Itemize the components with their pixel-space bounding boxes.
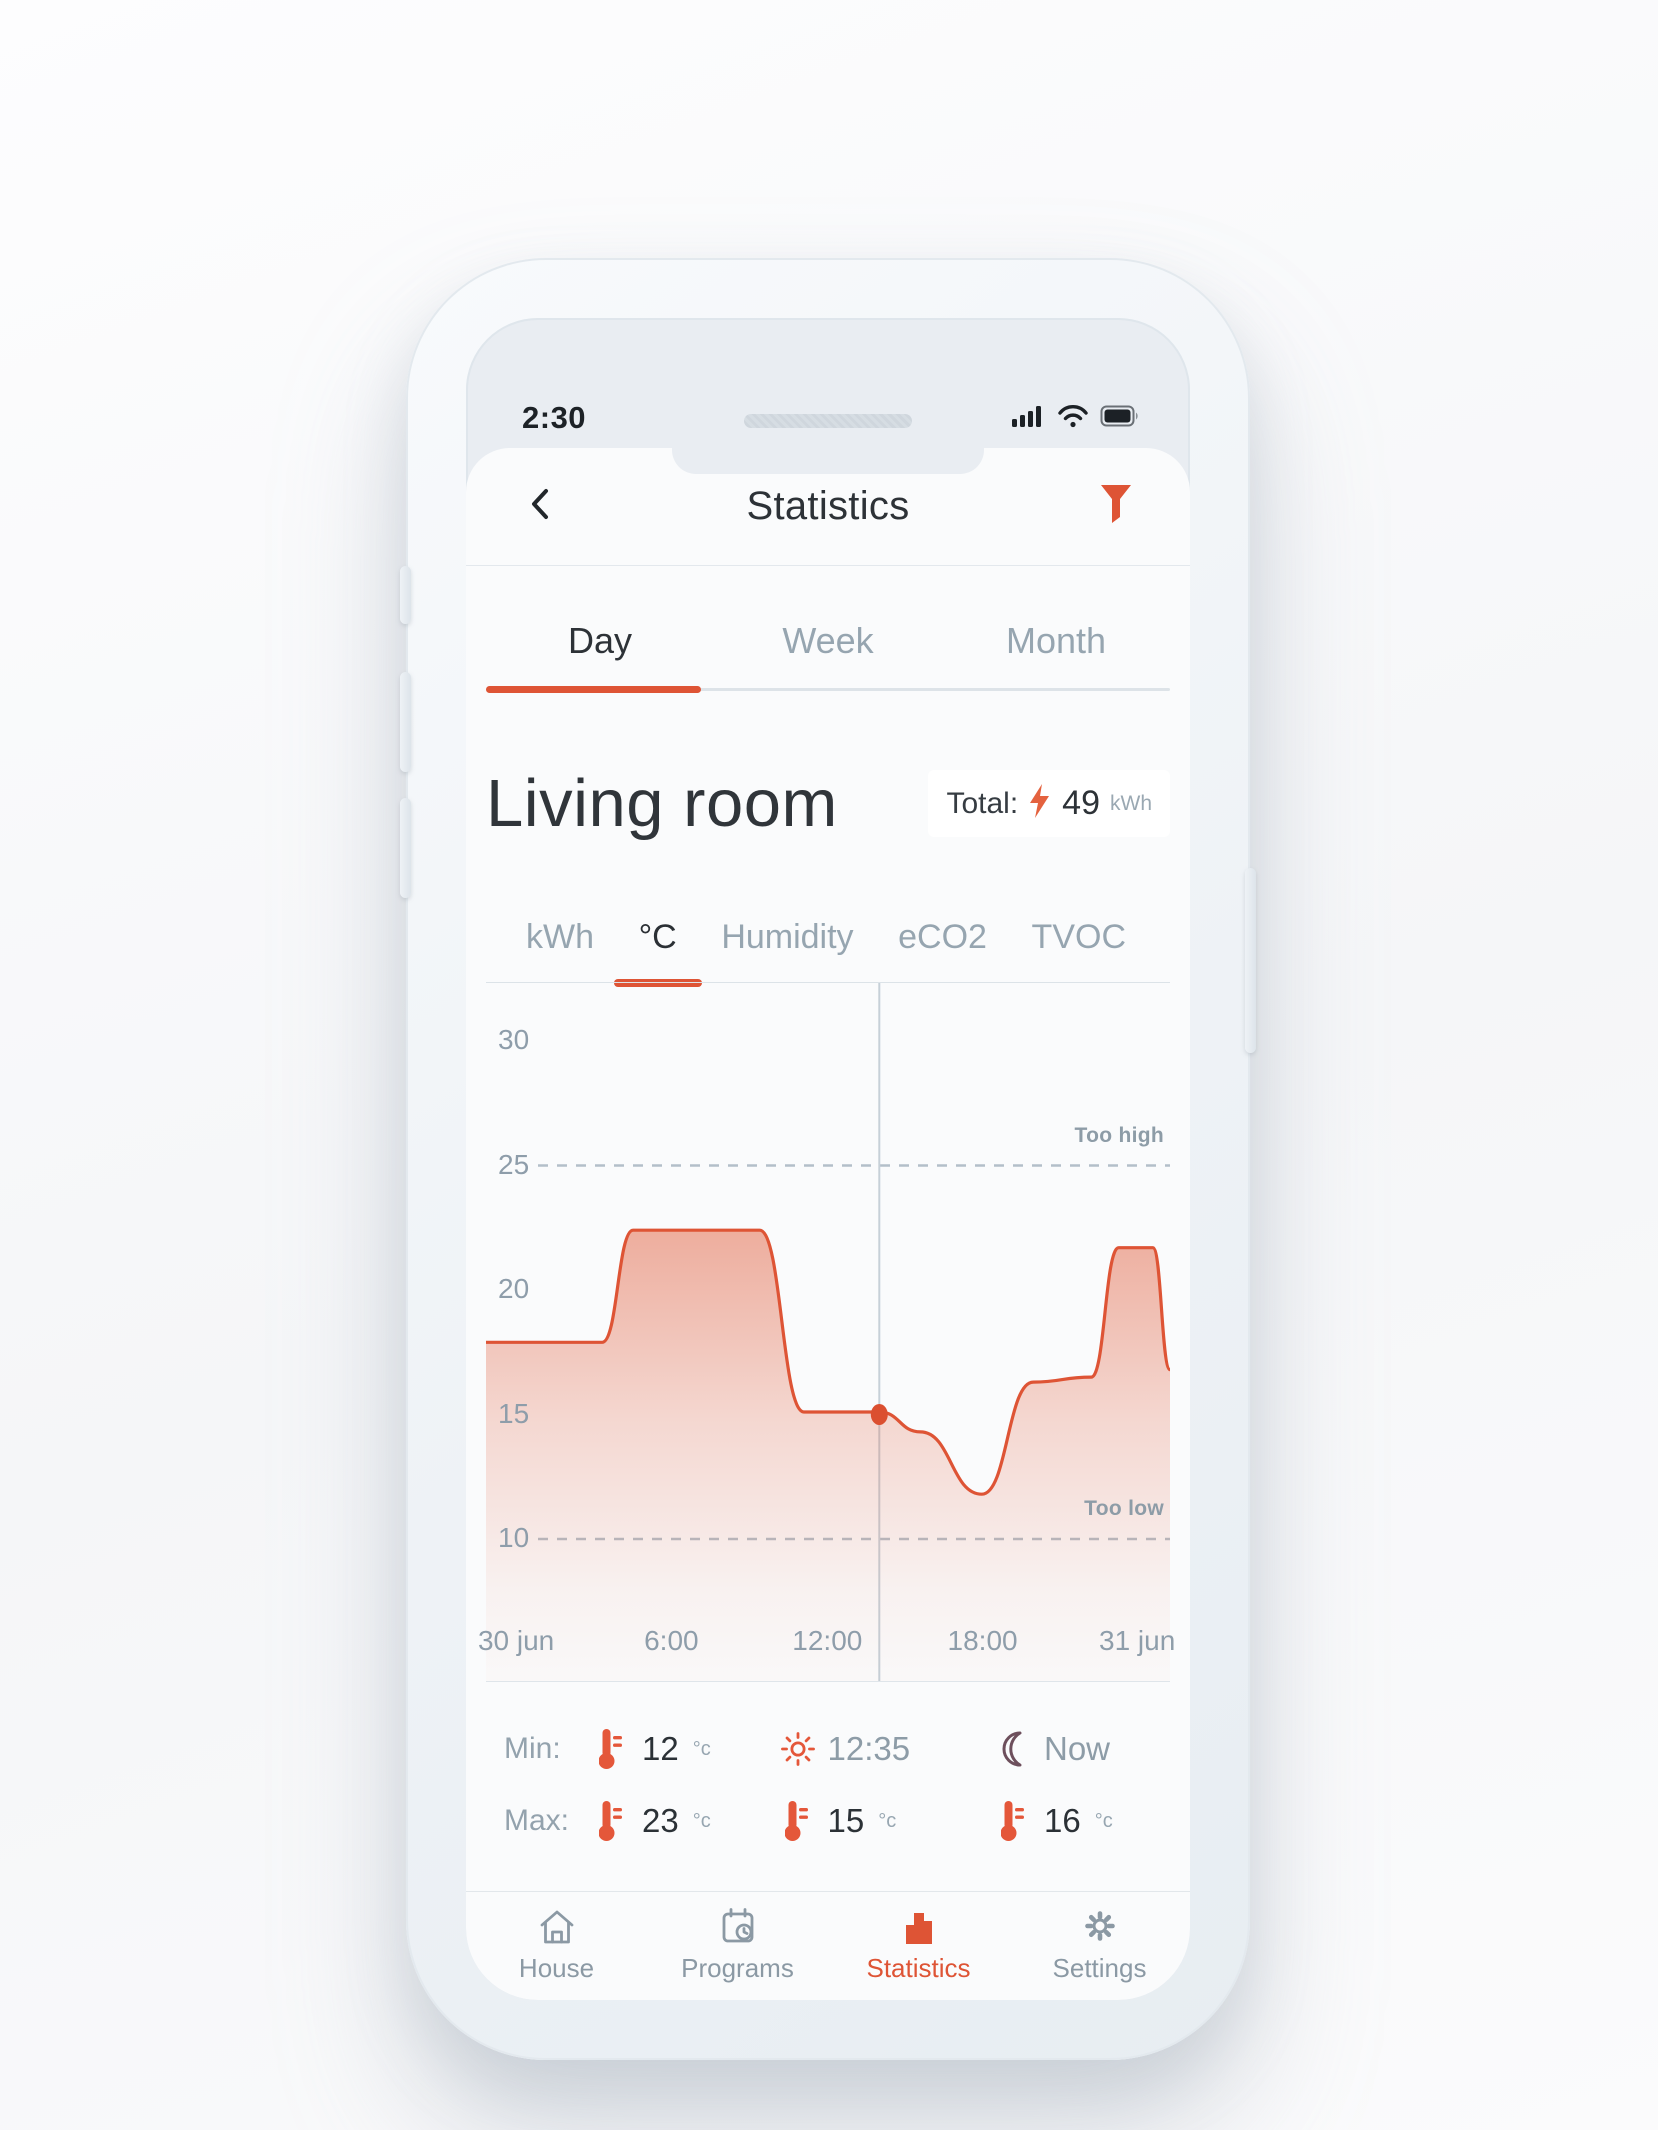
y-tick: 30 [498,1024,529,1056]
metric-tab-label: Humidity [721,918,853,956]
calendar-clock-icon [717,1906,759,1946]
bar-chart-icon [902,1906,936,1946]
midday-value: 15 [828,1802,865,1840]
metric-tabs: kWh °C Humidity eCO2 TVOC [486,918,1170,983]
max-label: Max: [504,1804,582,1838]
stat-midday-temp: 15 °c [780,1798,996,1844]
min-label: Min: [504,1732,582,1766]
metric-tab-tvoc[interactable]: TVOC [1032,918,1126,983]
volume-down-button [400,798,411,898]
stat-min: Min: 12 °c [504,1726,780,1772]
max-unit: °c [693,1810,711,1833]
tab-week[interactable]: Week [714,620,942,662]
total-unit: kWh [1110,792,1152,816]
now-unit: °c [1095,1810,1113,1833]
funnel-icon [1099,484,1133,529]
total-label: Total: [946,787,1018,821]
nav-label: Statistics [866,1953,970,1984]
tab-active-indicator [486,686,701,693]
mute-switch [400,566,411,624]
nav-item-settings[interactable]: Settings [1009,1892,1190,2000]
x-tick: 12:00 [792,1625,862,1657]
room-title: Living room [486,765,838,842]
midday-unit: °c [878,1810,896,1833]
nav-item-programs[interactable]: Programs [647,1892,828,2000]
sun-icon [780,1726,816,1772]
status-time: 2:30 [522,400,586,436]
total-value: 49 [1062,784,1100,823]
stat-now-temp: 16 °c [996,1798,1160,1844]
chart-plot [486,983,1170,1681]
stats-summary: Min: 12 °c [486,1682,1170,1844]
gear-icon [1080,1906,1120,1946]
total-box: Total: 49 kWh [928,770,1170,837]
nav-item-statistics[interactable]: Statistics [828,1892,1009,2000]
moon-icon [996,1726,1032,1772]
now-label: Now [1044,1730,1110,1768]
status-bar: 2:30 [466,318,1190,448]
cellular-signal-icon [1012,404,1046,433]
temperature-chart[interactable]: 30 25 20 15 10 Too high Too low 30 jun 6… [486,983,1170,1682]
back-button[interactable] [518,485,562,529]
tab-month[interactable]: Month [942,620,1170,662]
lightning-bolt-icon [1028,784,1052,823]
temperature-area [486,1230,1170,1681]
stat-now: Now [996,1726,1160,1772]
app-content: Statistics Day Week Month [466,448,1190,2000]
battery-icon [1100,404,1140,433]
period-tabs: Day Week Month [466,566,1190,691]
x-tick: 6:00 [644,1625,699,1657]
nav-label: House [519,1953,594,1984]
x-tick: 18:00 [948,1625,1018,1657]
stat-midday-time: 12:35 [780,1726,996,1772]
power-button [1245,868,1256,1053]
page-background: 2:30 [0,0,1658,2130]
y-tick: 15 [498,1398,529,1430]
metric-tab-label: TVOC [1032,918,1126,956]
phone-screen: 2:30 [466,318,1190,2000]
metric-tab-kwh[interactable]: kWh [526,918,594,983]
y-tick: 25 [498,1149,529,1181]
metric-tab-celsius[interactable]: °C [639,918,677,983]
metric-tab-label: eCO2 [898,918,987,956]
wifi-icon [1057,404,1089,433]
stat-max: Max: 23 °c [504,1798,780,1844]
tab-day[interactable]: Day [486,620,714,662]
tab-track [486,688,1170,691]
phone-mockup: 2:30 [406,258,1250,2060]
volume-up-button [400,672,411,772]
now-value: 16 [1044,1802,1081,1840]
nav-item-house[interactable]: House [466,1892,647,2000]
bottom-navigation: House Programs [466,1891,1190,2000]
notch [672,448,984,474]
thermometer-icon [996,1798,1032,1844]
midday-time: 12:35 [828,1730,911,1768]
thermometer-icon [780,1798,816,1844]
filter-button[interactable] [1094,485,1138,529]
house-icon [536,1906,578,1946]
page-title: Statistics [746,484,909,529]
nav-label: Programs [681,1953,794,1984]
min-unit: °c [693,1738,711,1761]
x-tick: 31 jun [1099,1625,1175,1657]
y-tick: 10 [498,1522,529,1554]
too-high-label: Too high [1075,1124,1164,1148]
nav-label: Settings [1053,1953,1147,1984]
max-value: 23 [642,1802,679,1840]
metric-tab-eco2[interactable]: eCO2 [898,918,987,983]
thermometer-icon [594,1798,630,1844]
metric-tab-humidity[interactable]: Humidity [721,918,853,983]
x-tick: 30 jun [478,1625,554,1657]
min-value: 12 [642,1730,679,1768]
metric-tab-label: °C [639,918,677,956]
thermometer-icon [594,1726,630,1772]
too-low-label: Too low [1084,1497,1164,1521]
room-row: Living room Total: 49 kWh [466,765,1190,842]
metric-tab-label: kWh [526,918,594,956]
chart-cursor-dot[interactable] [871,1404,888,1425]
chevron-left-icon [527,486,553,527]
y-tick: 20 [498,1273,529,1305]
